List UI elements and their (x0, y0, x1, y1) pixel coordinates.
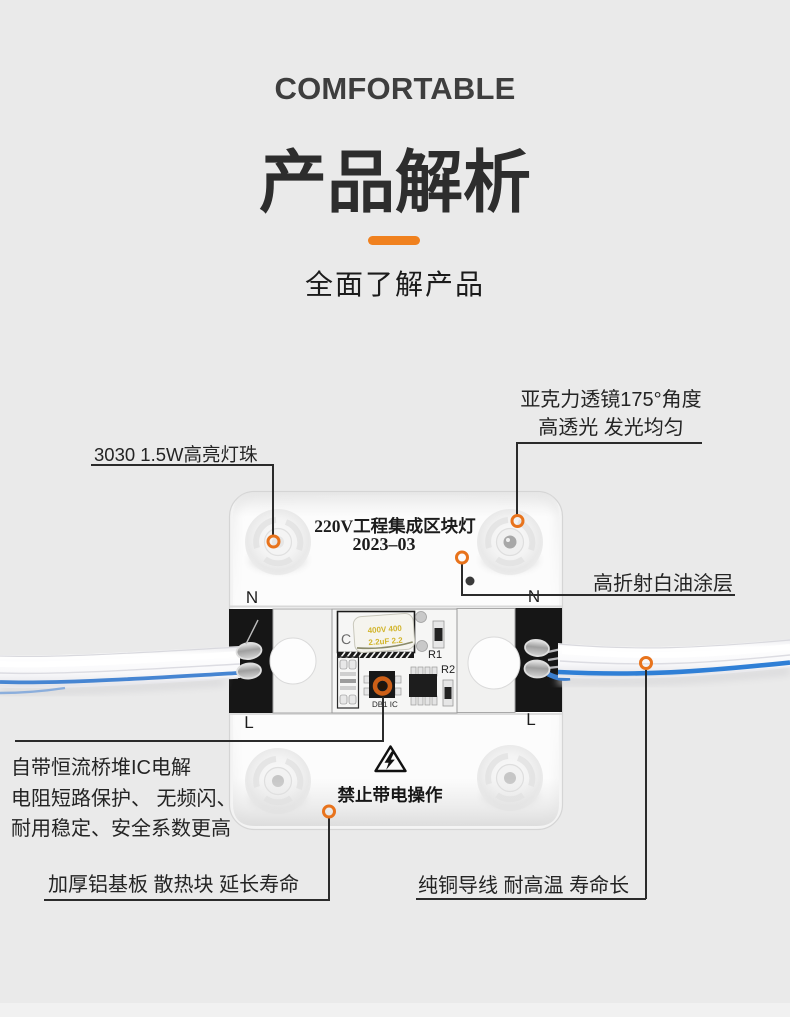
svg-text:L: L (526, 710, 535, 729)
svg-text:2023–03: 2023–03 (353, 534, 416, 554)
svg-text:N: N (246, 588, 258, 607)
svg-text:L: L (244, 713, 253, 732)
svg-text:N: N (528, 587, 540, 606)
svg-text:R1: R1 (428, 649, 442, 661)
svg-text:220V工程集成区块灯: 220V工程集成区块灯 (314, 516, 476, 536)
svg-text:C: C (341, 631, 351, 647)
svg-text:禁止带电操作: 禁止带电操作 (338, 785, 443, 805)
svg-text:DB1 IC: DB1 IC (372, 700, 398, 709)
svg-text:R2: R2 (441, 664, 455, 676)
